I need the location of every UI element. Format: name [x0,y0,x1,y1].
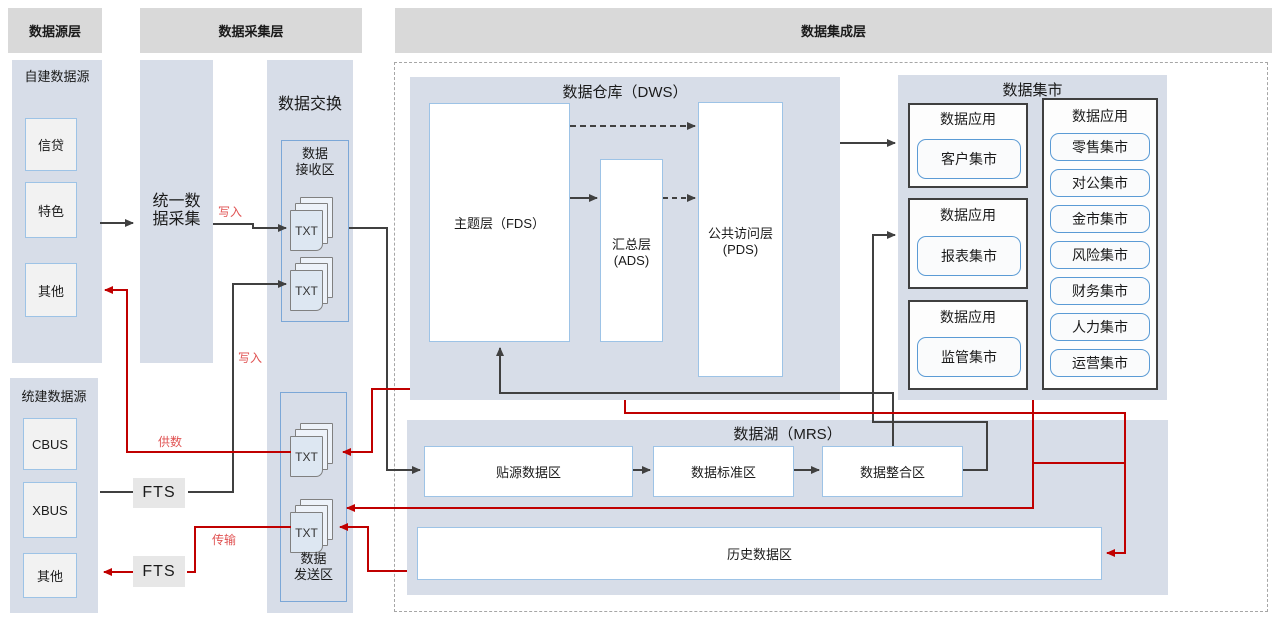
unified-source-title: 统建数据源 [10,386,98,405]
source-item-xindai: 信贷 [25,118,77,171]
txt-file-stack-receive-1: TXT [289,197,335,251]
data-exchange-title: 数据交换 [267,90,353,114]
header-collection-layer: 数据采集层 [140,8,362,53]
mart-item-lingshou: 零售集市 [1050,133,1150,161]
source-item-xbus: XBUS [23,482,77,538]
fds-box: 主题层（FDS） [429,103,570,342]
data-app-title-3: 数据应用 [908,307,1028,327]
mart-item-jinshi: 金市集市 [1050,205,1150,233]
mart-item-duigong: 对公集市 [1050,169,1150,197]
txt-file-label: TXT [290,270,323,311]
mart-item-jianguan: 监管集市 [917,337,1021,377]
txt-file-label: TXT [290,436,323,477]
source-item-qita-self: 其他 [25,263,77,317]
header-integration-layer: 数据集成层 [395,8,1272,53]
source-item-tese: 特色 [25,182,77,238]
header-source-layer: 数据源层 [8,8,102,53]
edge-label-write-upper: 写入 [218,203,242,220]
mart-item-renli: 人力集市 [1050,313,1150,341]
edge-label-transfer: 传输 [212,531,236,548]
ads-box: 汇总层 (ADS) [600,159,663,342]
txt-file-stack-receive-2: TXT [289,257,335,311]
mart-item-baobiao: 报表集市 [917,236,1021,276]
fts-lower-box: FTS [133,556,185,587]
mart-item-caiwu: 财务集市 [1050,277,1150,305]
architecture-diagram: 数据源层 数据采集层 数据集成层 自建数据源 信贷 特色 其他 统建数据源 CB… [0,0,1280,627]
zone-tieyuan: 贴源数据区 [424,446,633,497]
source-item-qita-unified: 其他 [23,553,77,598]
data-app-title-1: 数据应用 [908,109,1028,129]
data-mart-title: 数据集市 [898,79,1167,100]
self-built-source-title: 自建数据源 [12,66,102,85]
txt-file-label: TXT [290,512,323,553]
data-app-title-4: 数据应用 [1042,106,1158,126]
edge-label-supply: 供数 [158,433,182,450]
source-item-cbus: CBUS [23,418,77,470]
zone-zhenghe: 数据整合区 [822,446,963,497]
txt-file-stack-send-2: TXT [289,499,335,553]
receive-zone-label: 数据 接收区 [281,146,349,179]
fts-upper-box: FTS [133,478,185,508]
send-zone-label: 数据 发送区 [280,551,347,584]
unified-collect-label: 统一数 据采集 [140,193,213,230]
mart-item-fengxian: 风险集市 [1050,241,1150,269]
zone-biaozhun: 数据标准区 [653,446,794,497]
dws-title: 数据仓库（DWS） [410,81,840,102]
pds-box: 公共访问层 (PDS) [698,102,783,377]
txt-file-label: TXT [290,210,323,251]
history-zone: 历史数据区 [417,527,1102,580]
data-app-title-2: 数据应用 [908,205,1028,225]
mart-item-kehu: 客户集市 [917,139,1021,179]
edge-label-write-lower: 写入 [238,349,262,366]
txt-file-stack-send-1: TXT [289,423,335,477]
mart-item-yunying: 运营集市 [1050,349,1150,377]
mrs-title: 数据湖（MRS） [407,423,1168,444]
